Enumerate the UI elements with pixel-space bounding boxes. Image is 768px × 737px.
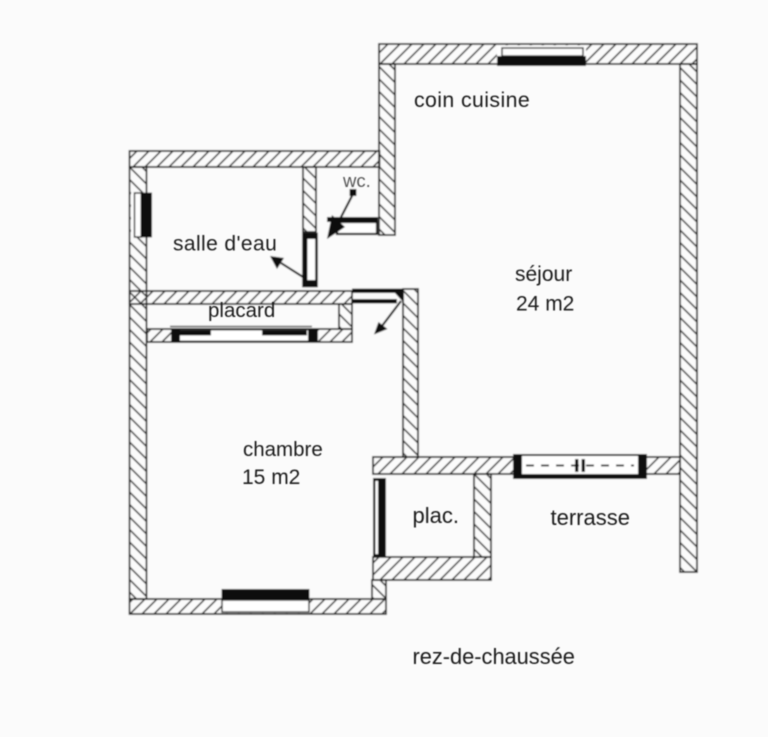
svg-text:rez-de-chaussée: rez-de-chaussée — [413, 644, 575, 669]
svg-text:placard: placard — [208, 299, 275, 322]
svg-text:plac.: plac. — [413, 503, 459, 528]
svg-text:15 m2: 15 m2 — [242, 466, 300, 489]
svg-text:salle d'eau: salle d'eau — [173, 233, 277, 256]
svg-text:24 m2: 24 m2 — [516, 293, 574, 316]
svg-text:wc.: wc. — [342, 170, 371, 191]
svg-text:chambre: chambre — [243, 438, 323, 461]
svg-text:terrasse: terrasse — [551, 505, 630, 530]
svg-text:séjour: séjour — [515, 263, 572, 286]
svg-text:coin cuisine: coin cuisine — [414, 88, 530, 112]
